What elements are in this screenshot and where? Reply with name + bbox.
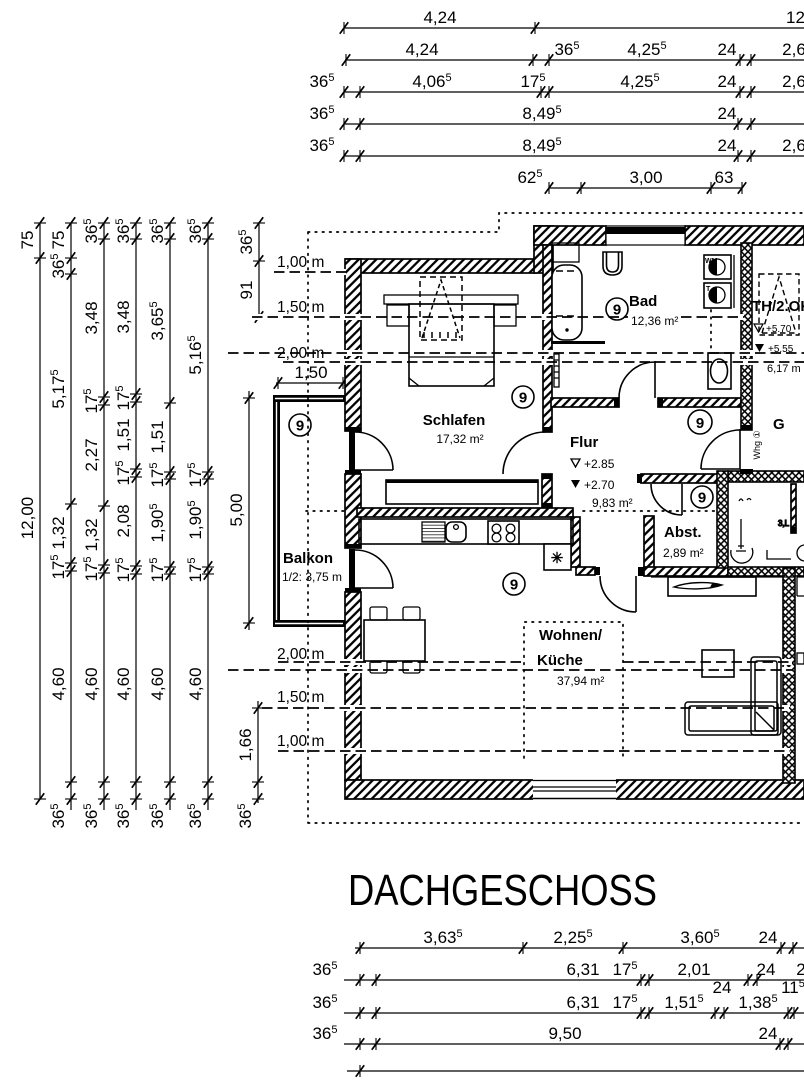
svg-text:12,36 m²: 12,36 m² [631,314,678,328]
svg-text:9: 9 [296,418,304,435]
svg-text:24: 24 [718,136,737,155]
svg-text:75: 75 [18,231,37,250]
svg-text:37,94 m²: 37,94 m² [557,674,604,688]
svg-text:24: 24 [718,40,737,59]
svg-text:9: 9 [696,415,704,432]
svg-text:24: 24 [718,72,737,91]
svg-text:24: 24 [759,928,778,947]
svg-text:1,51: 1,51 [114,418,133,451]
svg-text:✳: ✳ [551,550,564,567]
svg-text:+5.70: +5.70 [766,324,792,335]
svg-text:1,51: 1,51 [148,420,167,453]
svg-text:2,6: 2,6 [782,40,804,59]
svg-text:+2.85: +2.85 [584,457,615,471]
svg-text:+2.70: +2.70 [584,478,615,492]
svg-text:12,00: 12,00 [18,497,37,540]
svg-text:3,48: 3,48 [82,301,101,334]
svg-text:9,50: 9,50 [548,1024,581,1043]
svg-text:4,60: 4,60 [49,667,68,700]
svg-text:2,6: 2,6 [782,72,804,91]
svg-text:Flur: Flur [570,434,598,451]
svg-text:4,60: 4,60 [82,667,101,700]
svg-text:Wohnen/: Wohnen/ [539,627,603,644]
svg-text:2,27: 2,27 [82,438,101,471]
svg-text:4,60: 4,60 [114,667,133,700]
svg-text:4,60: 4,60 [186,667,205,700]
svg-text:9: 9 [519,390,527,407]
svg-text:T: T [706,286,711,293]
svg-text:Abst.: Abst. [664,524,702,541]
svg-text:2,89 m²: 2,89 m² [663,546,704,560]
svg-text:6,17 m: 6,17 m [767,363,801,375]
svg-text:1,32: 1,32 [82,518,101,551]
svg-text:Whg ①: Whg ① [752,430,762,459]
svg-text:TH/2.OK: TH/2.OK [752,298,804,315]
svg-text:9: 9 [613,302,621,319]
svg-text:Schlafen: Schlafen [423,412,486,429]
svg-text:3,00: 3,00 [629,168,662,187]
svg-text:Bad: Bad [629,293,657,310]
svg-text:1/2: 3,75 m: 1/2: 3,75 m [282,570,342,584]
svg-text:1,50: 1,50 [294,363,327,382]
svg-text:WM: WM [705,258,718,265]
svg-text:2: 2 [796,960,804,979]
svg-text:17,32 m²: 17,32 m² [436,432,483,446]
svg-text:3,48: 3,48 [114,300,133,333]
svg-text:6,31: 6,31 [566,960,599,979]
svg-text:1,00 m: 1,00 m [277,254,324,271]
svg-text:2,00 m: 2,00 m [277,646,324,663]
svg-text:9: 9 [698,490,706,507]
svg-text:1,32: 1,32 [49,516,68,549]
svg-text:91: 91 [237,281,256,300]
svg-text:2,00 m: 2,00 m [277,345,324,362]
svg-text:2,6: 2,6 [782,136,804,155]
svg-text:1,00 m: 1,00 m [277,733,324,750]
svg-text:1,66: 1,66 [236,728,255,761]
svg-text:4,24: 4,24 [405,40,438,59]
svg-text:63: 63 [715,168,734,187]
svg-text:2,01: 2,01 [677,960,710,979]
svg-text:4,24: 4,24 [423,8,456,27]
svg-text:G: G [773,416,785,433]
svg-text:9,83 m²: 9,83 m² [592,496,633,510]
svg-text:24: 24 [759,1024,778,1043]
svg-text:24: 24 [718,104,737,123]
svg-text:6,31: 6,31 [566,993,599,1012]
svg-text:5,00: 5,00 [227,493,246,526]
svg-text:75: 75 [49,231,68,250]
svg-text:12,0: 12,0 [786,8,804,27]
svg-text:1,50 m: 1,50 m [277,689,324,706]
svg-text:Küche: Küche [537,652,583,669]
svg-text:DACHGESCHOSS: DACHGESCHOSS [348,866,657,915]
svg-text:1,50 m: 1,50 m [277,299,324,316]
svg-text:4,60: 4,60 [148,667,167,700]
svg-text:24: 24 [757,960,776,979]
svg-text:2,08: 2,08 [114,504,133,537]
svg-text:9: 9 [510,577,518,594]
svg-text:24: 24 [713,978,732,997]
svg-text:3,L: 3,L [778,519,790,528]
